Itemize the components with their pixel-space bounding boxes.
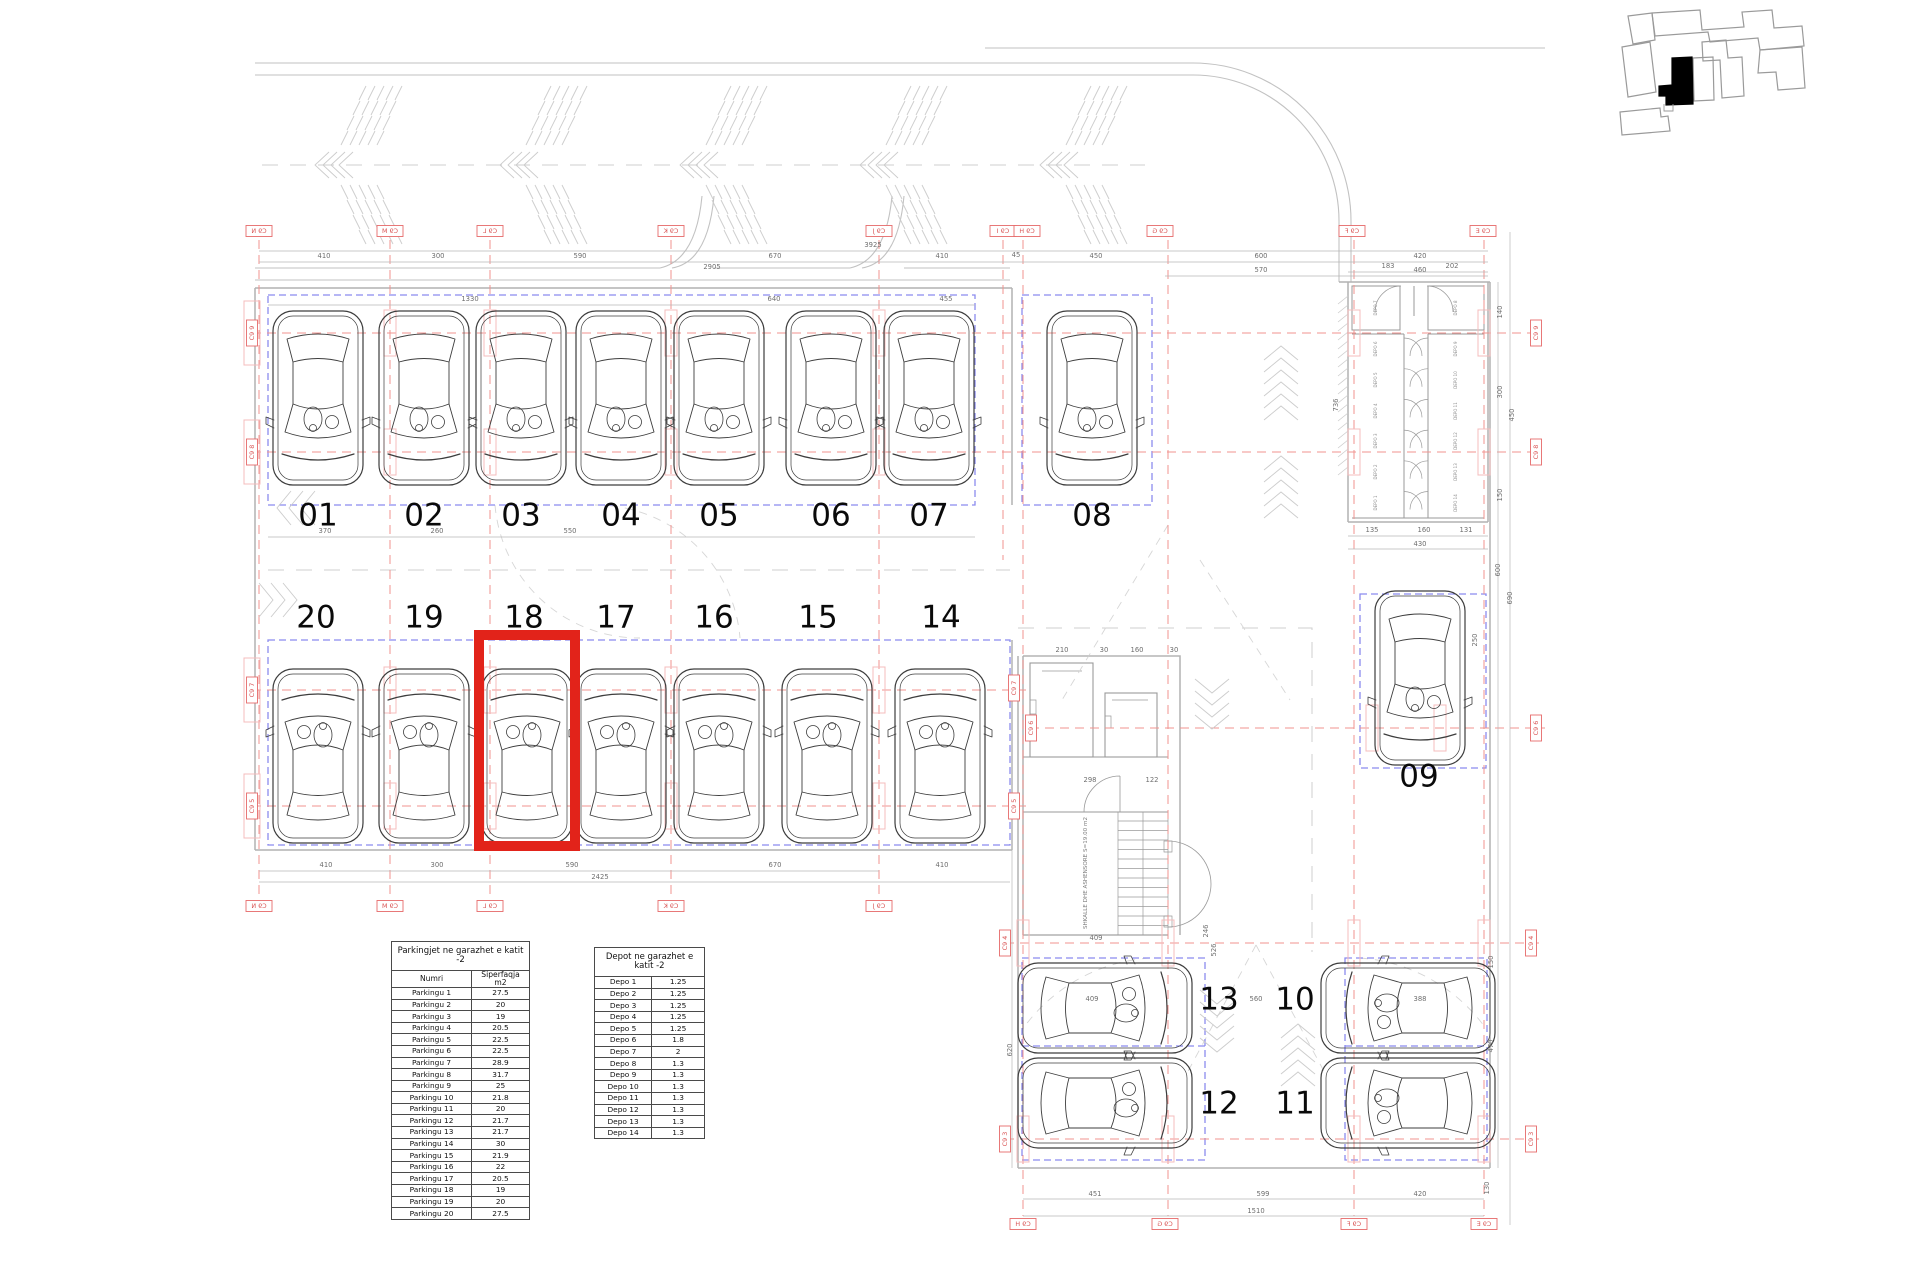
table-row: Parkingu 1521.9 (392, 1150, 530, 1162)
table-row: Parkingu 622.5 (392, 1045, 530, 1057)
dimension-label: 410 (318, 252, 331, 260)
parking-spot-label: 03 (501, 498, 540, 534)
table-row: Parkingu 1622 (392, 1161, 530, 1173)
dimension-label: 160 (1418, 526, 1431, 534)
grid-bubble: C9 M (377, 901, 403, 912)
grid-bubble: C9 4 (1526, 930, 1537, 956)
depot-room-label: DEPO 8 (1453, 300, 1458, 315)
depot-room-label: DEPO 11 (1453, 402, 1458, 420)
table-row: Parkingu 1021.8 (392, 1092, 530, 1104)
floor-plan-canvas: 4103005906704104545060042057046039252905… (0, 0, 1921, 1279)
grid-bubble: C9 5 (247, 793, 258, 819)
dimension-label: 590 (566, 861, 579, 869)
dimension-label: 640 (768, 295, 781, 303)
svg-text:C9 3: C9 3 (1001, 1132, 1009, 1147)
grid-bubble: C9 F (1341, 1219, 1367, 1230)
car-icon (1321, 1051, 1495, 1155)
svg-text:C9 N: C9 N (251, 227, 267, 235)
table-row: Parkingu 220 (392, 999, 530, 1011)
grid-bubble: C9 7 (1009, 675, 1020, 701)
table-row: Parkingu 925 (392, 1080, 530, 1092)
svg-text:C9 L: C9 L (483, 902, 498, 910)
dimension-label: 30 (1170, 646, 1179, 654)
svg-text:C9 9: C9 9 (248, 326, 256, 341)
dimension-label: 550 (564, 527, 577, 535)
dimension-label: 570 (1255, 266, 1268, 274)
dimension-label: 202 (1446, 262, 1459, 270)
table-cell: Parkingu 20 (392, 1208, 472, 1220)
depot-room-label: DEPO 5 (1373, 372, 1378, 387)
table-row: Depo 31.25 (595, 1000, 705, 1012)
depot-room-label: DEPO 1 (1373, 495, 1378, 510)
table-row: Depo 111.3 (595, 1092, 705, 1104)
depot-room-label: DEPO 13 (1453, 463, 1458, 481)
table-row: Parkingu 522.5 (392, 1034, 530, 1046)
parking-spot-label: 06 (811, 498, 850, 534)
table-cell: Depo 13 (595, 1116, 652, 1128)
grid-bubble: C9 4 (1000, 930, 1011, 956)
table-cell: 1.3 (652, 1081, 705, 1093)
depot-room-label: DEPO 2 (1373, 464, 1378, 479)
dimension-label: 420 (1414, 1190, 1427, 1198)
grid-bubble: C9 M (377, 226, 403, 237)
table-cell: Parkingu 2 (392, 999, 472, 1011)
svg-text:C9 8: C9 8 (248, 445, 256, 460)
svg-text:C9 N: C9 N (251, 902, 267, 910)
depot-room-label: DEPO 10 (1453, 371, 1458, 389)
grid-bubble: C9 N (246, 901, 272, 912)
table-row: Depo 41.25 (595, 1011, 705, 1023)
depot-room-label: DEPO 14 (1453, 494, 1458, 512)
table-cell: Parkingu 11 (392, 1103, 472, 1115)
car-icon (266, 311, 370, 485)
svg-text:C9 9: C9 9 (1532, 326, 1540, 341)
depot-areas-table: Depot ne garazhet e katit -2 Depo 11.25D… (594, 947, 705, 1139)
grid-bubble: C9 H (1014, 226, 1040, 237)
table-cell: 1.25 (652, 1011, 705, 1023)
depot-room-label: DEPO 3 (1373, 433, 1378, 448)
dimension-label: 670 (769, 861, 782, 869)
grid-bubble: C9 6 (1026, 715, 1037, 741)
dimension-label: 2905 (703, 263, 720, 271)
table-cell: Depo 2 (595, 988, 652, 1000)
svg-text:C9 6: C9 6 (1532, 721, 1540, 736)
table-cell: Parkingu 5 (392, 1034, 472, 1046)
table-cell: Parkingu 10 (392, 1092, 472, 1104)
parking-spot-label: 10 (1275, 982, 1314, 1018)
table-cell: 1.8 (652, 1034, 705, 1046)
grid-bubble: C9 L (477, 901, 503, 912)
svg-text:C9 F: C9 F (1345, 227, 1360, 235)
dimension-label: 455 (940, 295, 953, 303)
table-cell: 2 (652, 1046, 705, 1058)
table-row: Depo 91.3 (595, 1069, 705, 1081)
table-row: Depo 141.3 (595, 1127, 705, 1139)
table-cell: 19 (472, 1185, 530, 1197)
dimension-label: 246 (1202, 925, 1210, 938)
parking-spot-label: 09 (1399, 759, 1438, 795)
car-icon (1018, 956, 1192, 1060)
grid-bubble: C9 G (1147, 226, 1173, 237)
dimension-label: 410 (936, 252, 949, 260)
table-cell: 1.3 (652, 1058, 705, 1070)
parking-spot-label: 11 (1275, 1086, 1314, 1122)
table-row: Parkingu 728.9 (392, 1057, 530, 1069)
car-icon (1040, 311, 1144, 485)
dimension-label: 130 (1483, 1182, 1491, 1195)
svg-text:C9 E: C9 E (1476, 227, 1491, 235)
grid-bubble: C9 K (658, 901, 684, 912)
table-cell: 1.25 (652, 977, 705, 989)
parking-spot-label: 15 (798, 600, 837, 636)
table-cell: 1.3 (652, 1116, 705, 1128)
table-title: Parkingjet ne garazhet e katit -2 (392, 942, 530, 971)
table-cell: 31.7 (472, 1069, 530, 1081)
svg-text:C9 7: C9 7 (248, 683, 256, 698)
parking-spot-label: 04 (601, 498, 640, 534)
dimension-label: 2425 (591, 873, 608, 881)
car-icon (1018, 1051, 1192, 1155)
depot-room-labels: DEPO 7DEPO 6DEPO 5DEPO 4DEPO 3DEPO 2DEPO… (1373, 300, 1458, 512)
depot-room-label: DEPO 4 (1373, 403, 1378, 418)
dimension-label: 451 (1089, 1190, 1102, 1198)
table-row: Parkingu 127.5 (392, 987, 530, 999)
table-cell: 20 (472, 1103, 530, 1115)
dimension-label: 300 (432, 252, 445, 260)
table-cell: 22.5 (472, 1034, 530, 1046)
parking-spot-label: 19 (404, 600, 443, 636)
car-icon (667, 669, 771, 843)
dimension-label: 460 (1414, 266, 1427, 274)
grid-bubble: C9 J (866, 226, 892, 237)
table-row: Parkingu 1920 (392, 1196, 530, 1208)
dimension-label: 140 (1496, 306, 1504, 319)
table-cell: Depo 7 (595, 1046, 652, 1058)
grid-bubble: C9 3 (1526, 1126, 1537, 1152)
table-row: Depo 131.3 (595, 1116, 705, 1128)
table-cell: 20.5 (472, 1022, 530, 1034)
table-cell: Parkingu 9 (392, 1080, 472, 1092)
table-row: Parkingu 319 (392, 1011, 530, 1023)
car-icon (775, 669, 879, 843)
dimension-label: 590 (574, 252, 587, 260)
stair-core (1023, 663, 1211, 927)
table-cell: Parkingu 3 (392, 1011, 472, 1023)
svg-text:C9 E: C9 E (1477, 1220, 1492, 1228)
table-row: Parkingu 420.5 (392, 1022, 530, 1034)
car-icon (667, 311, 771, 485)
depot-room-label: DEPO 12 (1453, 432, 1458, 450)
table-cell: Parkingu 13 (392, 1127, 472, 1139)
table-cell: Parkingu 18 (392, 1185, 472, 1197)
svg-text:C9 4: C9 4 (1527, 936, 1535, 951)
dimension-label: 210 (1056, 646, 1069, 654)
car-icon (372, 669, 476, 843)
svg-text:C9 M: C9 M (382, 902, 398, 910)
key-plan (1620, 10, 1805, 135)
dimension-label: 736 (1332, 399, 1340, 412)
svg-text:C9 4: C9 4 (1001, 936, 1009, 951)
dimension-label: 135 (1366, 526, 1379, 534)
column-header-numri: Numri (392, 971, 472, 988)
svg-text:C9 H: C9 H (1015, 1220, 1031, 1228)
depot-room-label: DEPO 7 (1373, 300, 1378, 315)
table-cell: Parkingu 16 (392, 1161, 472, 1173)
car-icon (372, 311, 476, 485)
grid-bubble: C9 E (1471, 1219, 1497, 1230)
table-cell: Depo 9 (595, 1069, 652, 1081)
grid-bubble: C9 9 (1531, 320, 1542, 346)
table-cell: Parkingu 19 (392, 1196, 472, 1208)
table-row: Depo 61.8 (595, 1034, 705, 1046)
stair-label: SHKALLE DHE ASHENSORE S=19.00 m2 (1083, 817, 1089, 929)
table-cell: Depo 12 (595, 1104, 652, 1116)
parking-spot-label: 16 (694, 600, 733, 636)
grid-bubble: C9 K (658, 226, 684, 237)
table-cell: 25 (472, 1080, 530, 1092)
grid-bubble: C9 F (1339, 226, 1365, 237)
table-cell: 28.9 (472, 1057, 530, 1069)
car-icon (779, 311, 883, 485)
svg-text:C9 F: C9 F (1347, 1220, 1362, 1228)
table-cell: 27.5 (472, 1208, 530, 1220)
table-cell: 20 (472, 999, 530, 1011)
table-cell: 1.25 (652, 1023, 705, 1035)
dimension-label: 150 (1487, 956, 1495, 969)
dimension-label: 131 (1460, 526, 1473, 534)
stair-treads (1118, 812, 1168, 935)
table-title: Depot ne garazhet e katit -2 (595, 948, 705, 977)
table-cell: Depo 3 (595, 1000, 652, 1012)
svg-text:C9 3: C9 3 (1527, 1132, 1535, 1147)
table-cell: Parkingu 14 (392, 1138, 472, 1150)
table-cell: Parkingu 8 (392, 1069, 472, 1081)
svg-text:C9 6: C9 6 (1027, 721, 1035, 736)
road-lines (255, 48, 1545, 282)
dimension-label: 1510 (1247, 1207, 1264, 1215)
dimension-label: 560 (1250, 995, 1263, 1003)
dimension-label: 1330 (461, 295, 478, 303)
table-row: Parkingu 1321.7 (392, 1127, 530, 1139)
drive-centerlines (262, 165, 1312, 952)
table-cell: 1.3 (652, 1104, 705, 1116)
dimension-label: 30 (1100, 646, 1109, 654)
parking-spot-label: 05 (699, 498, 738, 534)
parking-spot-label: 12 (1199, 1086, 1238, 1122)
table-cell: Parkingu 4 (392, 1022, 472, 1034)
table-row: Parkingu 1221.7 (392, 1115, 530, 1127)
svg-text:C9 5: C9 5 (1010, 799, 1018, 814)
grid-bubble: C9 H (1010, 1219, 1036, 1230)
table-row: Depo 21.25 (595, 988, 705, 1000)
table-cell: 1.25 (652, 988, 705, 1000)
table-row: Depo 121.3 (595, 1104, 705, 1116)
table-cell: 21.8 (472, 1092, 530, 1104)
table-row: Depo 72 (595, 1046, 705, 1058)
table-cell: 21.7 (472, 1127, 530, 1139)
parking-spot-label: 08 (1072, 498, 1111, 534)
dimension-label: 670 (769, 252, 782, 260)
grid-bubble: C9 5 (1009, 793, 1020, 819)
table-cell: 19 (472, 1011, 530, 1023)
grid-bubble: C9 L (477, 226, 503, 237)
grid-bubble: C9 8 (247, 439, 258, 465)
grid-bubble: C9 N (246, 226, 272, 237)
table-row: Parkingu 1430 (392, 1138, 530, 1150)
table-cell: 30 (472, 1138, 530, 1150)
table-cell: Depo 10 (595, 1081, 652, 1093)
svg-text:C9 I: C9 I (997, 227, 1010, 235)
table-cell: Parkingu 1 (392, 987, 472, 999)
grid-bubble: C9 3 (1000, 1126, 1011, 1152)
table-cell: Parkingu 6 (392, 1045, 472, 1057)
dimension-label: 450 (1508, 409, 1516, 422)
svg-text:C9 M: C9 M (382, 227, 398, 235)
table-cell: Depo 1 (595, 977, 652, 989)
depot-room-label: DEPO 9 (1453, 341, 1458, 356)
car-icon (469, 311, 573, 485)
table-cell: Parkingu 12 (392, 1115, 472, 1127)
table-row: Parkingu 1720.5 (392, 1173, 530, 1185)
parking-spot-label: 14 (921, 600, 960, 636)
dimension-label: 599 (1257, 1190, 1270, 1198)
table-cell: Depo 14 (595, 1127, 652, 1139)
table-cell: Depo 5 (595, 1023, 652, 1035)
car-icon (888, 669, 992, 843)
grid-bubble: C9 G (1152, 1219, 1178, 1230)
dimension-label: 45 (1012, 251, 1021, 259)
grid-bubble: C9 J (866, 901, 892, 912)
table-row: Parkingu 2027.5 (392, 1208, 530, 1220)
parking-spot-label: 07 (909, 498, 948, 534)
table-cell: Depo 4 (595, 1011, 652, 1023)
depot-room-label: DEPO 6 (1373, 341, 1378, 356)
table-cell: 21.7 (472, 1115, 530, 1127)
dimension-label: 160 (1131, 646, 1144, 654)
table-row: Parkingu 831.7 (392, 1069, 530, 1081)
grid-bubble: C9 I (990, 226, 1016, 237)
svg-text:C9 H: C9 H (1019, 227, 1035, 235)
dimension-label: 183 (1382, 262, 1395, 270)
dimension-label: 122 (1146, 776, 1159, 784)
parking-areas-table: Parkingjet ne garazhet e katit -2 Numri … (391, 941, 530, 1220)
grid-bubble: C9 7 (247, 677, 258, 703)
dimension-label: 3925 (864, 241, 881, 249)
svg-text:C9 8: C9 8 (1532, 445, 1540, 460)
dimension-label: 300 (1496, 386, 1504, 399)
table-cell: 1.3 (652, 1092, 705, 1104)
car-icon (877, 311, 981, 485)
table-row: Parkingu 1819 (392, 1185, 530, 1197)
svg-text:C9 J: C9 J (873, 227, 886, 235)
svg-text:C9 G: C9 G (1157, 1220, 1173, 1228)
dimension-label: 600 (1255, 252, 1268, 260)
dimension-label: 298 (1084, 776, 1097, 784)
dimension-label: 450 (1090, 252, 1103, 260)
dimension-label: 430 (1414, 540, 1427, 548)
table-cell: Depo 6 (595, 1034, 652, 1046)
svg-text:C9 K: C9 K (663, 227, 679, 235)
svg-text:C9 L: C9 L (483, 227, 498, 235)
dimension-label: 690 (1506, 592, 1514, 605)
dimension-label: 620 (1006, 1044, 1014, 1057)
table-cell: Parkingu 17 (392, 1173, 472, 1185)
column-header-siperfaqja: Siperfaqja m2 (472, 971, 530, 988)
dimension-label: 409 (1090, 934, 1103, 942)
table-cell: 1.25 (652, 1000, 705, 1012)
table-cell: Parkingu 7 (392, 1057, 472, 1069)
table-row: Depo 11.25 (595, 977, 705, 989)
table-cell: 27.5 (472, 987, 530, 999)
dimension-label: 470 (1487, 1040, 1495, 1053)
car-icon (1368, 591, 1472, 765)
parking-spot-label: 02 (404, 498, 443, 534)
dimension-label: 526 (1210, 944, 1218, 957)
parking-spot-label: 13 (1199, 982, 1238, 1018)
dimension-label: 150 (1496, 489, 1504, 502)
table-cell: 22 (472, 1161, 530, 1173)
table-cell: 21.9 (472, 1150, 530, 1162)
grid-bubble: C9 8 (1531, 439, 1542, 465)
table-cell: Depo 11 (595, 1092, 652, 1104)
grid-bubble: C9 9 (247, 320, 258, 346)
floor-plan-drawing: 4103005906704104545060042057046039252905… (0, 0, 1921, 1279)
table-row: Parkingu 1120 (392, 1103, 530, 1115)
parking-spot-label: 20 (296, 600, 335, 636)
svg-text:C9 J: C9 J (873, 902, 886, 910)
table-cell: 20.5 (472, 1173, 530, 1185)
table-cell: 22.5 (472, 1045, 530, 1057)
table-cell: 20 (472, 1196, 530, 1208)
svg-text:C9 5: C9 5 (248, 799, 256, 814)
dimension-label: 600 (1494, 564, 1502, 577)
key-plan-current-building (1659, 57, 1693, 105)
car-icon (266, 669, 370, 843)
svg-text:C9 K: C9 K (663, 902, 679, 910)
table-row: Depo 51.25 (595, 1023, 705, 1035)
table-cell: 1.3 (652, 1069, 705, 1081)
dimension-label: 250 (1471, 634, 1479, 647)
dimension-label: 410 (936, 861, 949, 869)
svg-text:C9 7: C9 7 (1010, 681, 1018, 696)
car-icon (569, 669, 673, 843)
svg-text:C9 G: C9 G (1152, 227, 1168, 235)
dimension-label: 409 (1086, 995, 1099, 1003)
table-row: Depo 81.3 (595, 1058, 705, 1070)
car-icon (475, 669, 579, 843)
table-cell: Depo 8 (595, 1058, 652, 1070)
grid-bubble: C9 E (1470, 226, 1496, 237)
table-row: Depo 101.3 (595, 1081, 705, 1093)
dimension-label: 300 (431, 861, 444, 869)
dimension-label: 410 (320, 861, 333, 869)
dimension-label: 420 (1414, 252, 1427, 260)
car-icon (569, 311, 673, 485)
table-cell: Parkingu 15 (392, 1150, 472, 1162)
table-cell: 1.3 (652, 1127, 705, 1139)
dimension-label: 388 (1414, 995, 1427, 1003)
parking-spot-label: 01 (298, 498, 337, 534)
parking-spot-label: 17 (596, 600, 635, 636)
grid-bubble: C9 6 (1531, 715, 1542, 741)
